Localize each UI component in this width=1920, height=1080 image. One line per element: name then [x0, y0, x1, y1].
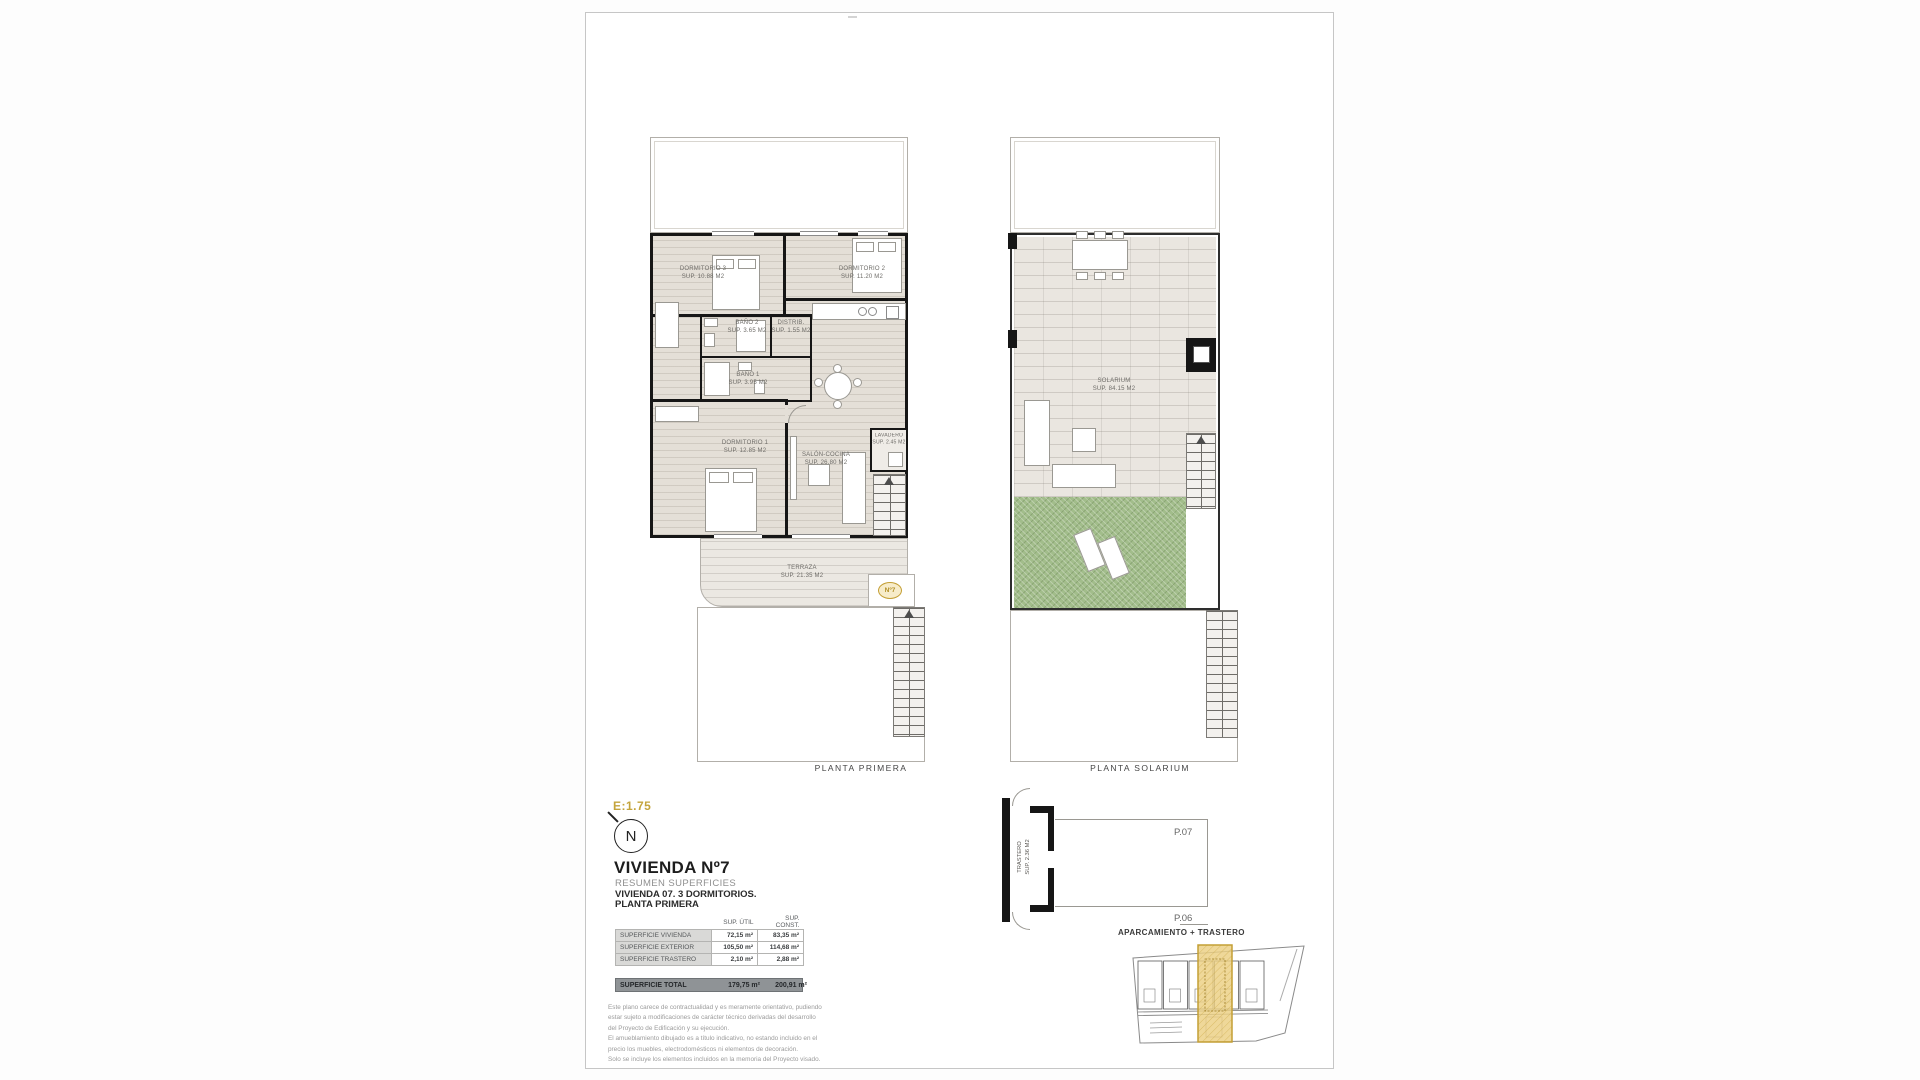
chair	[1094, 272, 1106, 280]
wall-nib	[1008, 233, 1017, 249]
row-const: 114,68 m²	[758, 942, 804, 954]
tv-sideboard	[790, 436, 797, 500]
total-const: 200,91 m²	[763, 982, 810, 989]
pillow	[856, 242, 874, 252]
parking-line	[1180, 924, 1208, 925]
room-label-solarium: SOLARIUMSUP. 84.15 M2	[1086, 378, 1142, 394]
primera-lower-patio	[697, 607, 925, 762]
stairs-up-arrow	[884, 477, 894, 485]
parking-line	[1207, 819, 1208, 907]
parking-space-p06: P.06	[1174, 913, 1192, 924]
trastero-wall	[1048, 868, 1054, 905]
aparcamiento-caption: APARCAMIENTO + TRASTERO	[1118, 928, 1245, 937]
sink	[738, 362, 752, 371]
coffee-table	[1072, 428, 1096, 452]
row-util: 2,10 m²	[712, 954, 758, 966]
title-subtitle: RESUMEN SUPERFICIES	[615, 878, 736, 889]
table-header-row: SUP. ÚTIL SUP. CONST.	[616, 915, 804, 930]
row-label: SUPERFICIE EXTERIOR	[616, 942, 712, 954]
wall	[785, 298, 908, 301]
trastero-wall	[1030, 905, 1054, 912]
row-util: 105,50 m²	[712, 942, 758, 954]
window	[858, 231, 888, 236]
row-const: 2,88 m²	[758, 954, 804, 966]
caption-planta-solarium: PLANTA SOLARIUM	[1058, 763, 1222, 773]
room-label-lavadero: LAVADEROSUP. 2.45 M2	[868, 433, 911, 446]
col-sup-const: SUP. CONST.	[758, 915, 804, 930]
wall	[650, 399, 788, 402]
window	[800, 231, 838, 236]
wall	[700, 356, 812, 358]
trastero-wall	[1002, 798, 1010, 922]
table-row: SUPERFICIE EXTERIOR 105,50 m² 114,68 m²	[616, 942, 804, 954]
sheet-top-mark	[848, 16, 857, 18]
outdoor-dining-table	[1072, 240, 1128, 270]
kitchen-sink	[886, 306, 899, 319]
room-label-dormitorio2: DORMITORIO 2SUP. 11.20 M2	[832, 266, 892, 282]
trastero-label: TRASTEROSUP. 2.36 M2	[1016, 822, 1038, 892]
disclaimer-line: Este plano carece de contractualidad y e…	[608, 1003, 870, 1013]
pillow	[709, 472, 729, 483]
room-label-bano2: BAÑO 2SUP. 3.65 M2	[721, 320, 773, 336]
stairs-up-arrow	[904, 610, 914, 618]
total-util: 179,75 m²	[716, 982, 763, 989]
washing-machine	[888, 452, 903, 467]
disclaimer-line: estar sujeto a modificaciones de carácte…	[608, 1013, 870, 1023]
chair	[1094, 231, 1106, 239]
page-title: VIVIENDA Nº7	[614, 858, 730, 878]
total-label: SUPERFICIE TOTAL	[616, 982, 716, 989]
solarium-top-terrace-inner	[1014, 141, 1216, 229]
chair	[853, 378, 862, 387]
chaise-lounge	[1024, 400, 1050, 466]
disclaimer-text: Este plano carece de contractualidad y e…	[608, 1003, 870, 1065]
chair	[1112, 272, 1124, 280]
row-const: 83,35 m²	[758, 930, 804, 942]
disclaimer-line: Solo se incluye los elementos incluidos …	[608, 1055, 870, 1065]
room-label-distrib: DISTRIB.SUP. 1.55 M2	[768, 320, 814, 336]
trastero-wall	[1048, 813, 1054, 851]
title-line-planta: PLANTA PRIMERA	[615, 899, 699, 910]
chair	[1076, 231, 1088, 239]
surface-total-row: SUPERFICIE TOTAL 179,75 m² 200,91 m²	[615, 978, 803, 992]
stove-burner	[868, 307, 877, 316]
table-row: SUPERFICIE TRASTERO 2,10 m² 2,88 m²	[616, 954, 804, 966]
trastero-wall	[1030, 806, 1054, 813]
parking-space-p07: P.07	[1174, 827, 1192, 838]
wardrobe	[655, 406, 699, 422]
window	[712, 231, 754, 236]
pillow	[878, 242, 896, 252]
chair	[814, 378, 823, 387]
wall-nib	[1008, 330, 1017, 348]
exterior-stairs	[1206, 610, 1238, 738]
wardrobe	[655, 302, 679, 348]
disclaimer-line: del Proyecto de Edificación y su ejecuci…	[608, 1024, 870, 1034]
stove-burner	[858, 307, 867, 316]
sink	[704, 318, 718, 327]
chair	[1112, 231, 1124, 239]
row-label: SUPERFICIE VIVIENDA	[616, 930, 712, 942]
row-label: SUPERFICIE TRASTERO	[616, 954, 712, 966]
north-compass-icon: N	[614, 819, 648, 853]
room-label-salon: SALÓN-COCINASUP. 26.80 M2	[798, 452, 854, 468]
col-sup-util: SUP. ÚTIL	[712, 915, 758, 930]
dining-table	[824, 372, 852, 400]
scale-label: E:1.75	[613, 799, 651, 813]
chair	[833, 400, 842, 409]
pillow	[733, 472, 753, 483]
solarium-stairs	[1186, 433, 1216, 509]
parking-line	[1055, 819, 1207, 820]
room-label-terraza: TERRAZASUP. 21.35 M2	[774, 565, 830, 581]
disclaimer-line: El amueblamiento dibujado es a título in…	[608, 1034, 870, 1044]
caption-planta-primera: PLANTA PRIMERA	[788, 763, 934, 773]
row-util: 72,15 m²	[712, 930, 758, 942]
pillow	[738, 259, 756, 269]
room-label-dormitorio1: DORMITORIO 1SUP. 12.85 M2	[713, 440, 777, 456]
primera-top-terrace-inner	[654, 141, 904, 229]
toilet	[704, 333, 715, 347]
parking-line	[1055, 906, 1207, 907]
site-key-plan	[1126, 941, 1312, 1047]
table-row: SUPERFICIE VIVIENDA 72,15 m² 83,35 m²	[616, 930, 804, 942]
room-label-dormitorio3: DORMITORIO 3SUP. 10.88 M2	[673, 266, 733, 282]
outdoor-sink	[1193, 346, 1210, 363]
room-label-bano1: BAÑO 1SUP. 3.95 M2	[722, 372, 774, 388]
surface-summary-table: SUP. ÚTIL SUP. CONST. SUPERFICIE VIVIEND…	[615, 915, 804, 966]
screenshot-canvas: Nº7 DORMITORIO 3SUP. 10.88 M2 DORMITORIO…	[0, 0, 1920, 1080]
wall	[783, 233, 786, 317]
chair	[833, 364, 842, 373]
unit-number-badge: Nº7	[878, 582, 902, 599]
chair	[1076, 272, 1088, 280]
solarium-lower-patio	[1010, 610, 1238, 762]
stairs-up-arrow	[1196, 436, 1206, 444]
disclaimer-line: precio los muebles, electrodomésticos ni…	[608, 1045, 870, 1055]
sofa	[1052, 464, 1116, 488]
exterior-stairs	[893, 607, 925, 737]
